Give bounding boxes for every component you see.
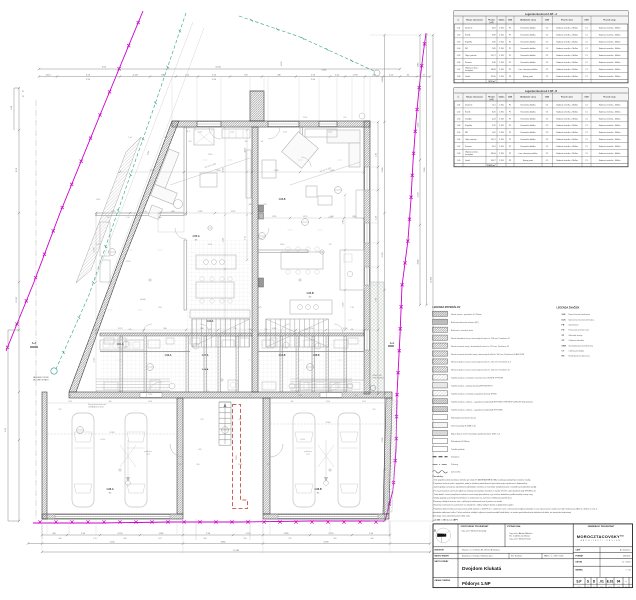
svg-text:1.465: 1.465 <box>418 63 420 68</box>
svg-text:PARC. Č.: XXX / XXX: PARC. Č.: XXX / XXX <box>544 555 564 558</box>
svg-text:Obkladané steny: Obkladané steny <box>520 96 537 99</box>
svg-text:Sadrová omietka + Maľba: Sadrová omietka + Maľba <box>556 159 579 162</box>
svg-text:Sadrová omietka + Maľba: Sadrová omietka + Maľba <box>556 138 579 141</box>
svg-text:Keramická dlažba: Keramická dlažba <box>520 110 536 113</box>
svg-text:Keramická dlažba: Keramická dlažba <box>520 47 536 50</box>
svg-text:1.125: 1.125 <box>328 391 332 393</box>
svg-text:1.04: 1.04 <box>457 125 461 127</box>
svg-text:250: 250 <box>355 395 358 397</box>
svg-text:LIGHADA R.20 2013: LIGHADA R.20 2013 <box>88 406 104 409</box>
svg-text:2,700: 2,700 <box>499 41 504 43</box>
svg-text:1.93: 1.93 <box>376 153 378 157</box>
svg-text:2.28: 2.28 <box>376 216 378 220</box>
svg-text:Lam. drevená podlaha: Lam. drevená podlaha <box>519 152 539 155</box>
svg-text:O1: O1 <box>546 139 549 141</box>
svg-text:Komora: Komora <box>465 145 473 148</box>
svg-text:O2: O2 <box>546 41 549 43</box>
svg-text:710: 710 <box>107 217 110 219</box>
svg-text:1.06: 1.06 <box>457 62 461 64</box>
svg-text:4,24: 4,24 <box>492 118 496 120</box>
svg-text:C1: C1 <box>585 27 587 29</box>
svg-text:Bc. Ľudmila Jurčíková: Bc. Ľudmila Jurčíková <box>510 535 531 538</box>
svg-text:Názov miestnosti: Názov miestnosti <box>466 96 483 99</box>
svg-text:1.08: 1.08 <box>457 153 461 155</box>
svg-text:C1: C1 <box>585 104 587 106</box>
svg-text:1.100: 1.100 <box>418 193 420 198</box>
svg-text:Sadrová omietka + Maľba: Sadrová omietka + Maľba <box>599 75 622 78</box>
svg-text:DLK: DLK <box>562 319 567 321</box>
svg-text:1 : 50: 1 : 50 <box>625 570 631 572</box>
svg-text:710: 710 <box>329 244 332 246</box>
svg-text:1,62: 1,62 <box>492 132 496 134</box>
svg-text:KÚ: Ružinov: KÚ: Ružinov <box>511 555 522 558</box>
svg-text:3.860: 3.860 <box>220 541 226 543</box>
svg-text:1.01: 1.01 <box>457 27 461 29</box>
svg-text:Inštalačne: Inštalačne <box>451 456 459 459</box>
svg-text:2.100: 2.100 <box>126 261 131 263</box>
svg-text:250: 250 <box>179 464 182 466</box>
svg-text:Sadrová omietka + Maľba: Sadrová omietka + Maľba <box>599 26 622 29</box>
svg-text:250: 250 <box>264 204 267 206</box>
svg-text:Sadrová omietka + Maľba: Sadrová omietka + Maľba <box>556 103 579 106</box>
svg-text:MOROCZTACOVSKY™: MOROCZTACOVSKY™ <box>577 534 624 539</box>
svg-text:-0.020: -0.020 <box>300 439 305 441</box>
svg-text:1.04: 1.04 <box>11 106 13 110</box>
svg-text:1.790: 1.790 <box>245 533 251 535</box>
svg-text:2.04: 2.04 <box>283 132 287 134</box>
svg-text:- Projektové riešenie jadro i: - Projektové riešenie jadro i projektoré… <box>433 482 529 485</box>
svg-text:76.7°: 76.7° <box>186 131 191 133</box>
svg-text:1.985: 1.985 <box>283 533 289 535</box>
svg-text:2,700: 2,700 <box>499 55 504 57</box>
svg-text:1.141: 1.141 <box>208 244 213 246</box>
svg-text:Železobetón B-190mm: Železobetón B-190mm <box>451 440 470 443</box>
svg-text:Tehelňá pokladu: Tehelňá pokladu <box>451 449 464 451</box>
svg-text:2.720: 2.720 <box>328 533 334 535</box>
svg-text:TUHE ODPADY: TUHE ODPADY <box>372 377 385 380</box>
svg-text:260: 260 <box>265 329 268 331</box>
svg-text:2.100: 2.100 <box>96 244 100 246</box>
svg-text:Pôdorys 1.NP: Pôdorys 1.NP <box>462 581 491 586</box>
svg-text:Keramická dlažba: Keramická dlažba <box>520 61 536 64</box>
svg-text:ZODPOVEDNÝ PROJEKTANT: ZODPOVEDNÝ PROJEKTANT <box>461 525 490 528</box>
svg-text:Sadrová omietka + Maľba: Sadrová omietka + Maľba <box>599 61 622 64</box>
svg-text:240: 240 <box>59 538 62 540</box>
svg-text:Tepelná izolácia a izolácia -: Tepelná izolácia a izolácia - sagordovan… <box>451 400 533 403</box>
svg-text:2.180: 2.180 <box>216 170 221 172</box>
svg-text:Sadrová omietka + Maľba: Sadrová omietka + Maľba <box>556 40 579 43</box>
svg-text:OZN: OZN <box>545 20 550 22</box>
svg-text:125: 125 <box>207 391 210 393</box>
svg-text:2,700: 2,700 <box>499 118 504 120</box>
svg-text:Sadrová omietka + Maľba: Sadrová omietka + Maľba <box>599 152 622 155</box>
svg-text:150: 150 <box>245 141 248 143</box>
svg-text:125: 125 <box>373 409 376 411</box>
svg-text:OZN: OZN <box>545 97 550 99</box>
svg-text:1.03-A: 1.03-A <box>165 354 172 357</box>
svg-text:- Rozmery všetkých otvorov, st: - Rozmery všetkých otvorov, stien i výšk… <box>433 500 503 503</box>
svg-text:Tepelná izolácia a izolácia -: Tepelná izolácia a izolácia - sagordovan… <box>451 408 503 411</box>
svg-text:Sadrová omietka + Maľba: Sadrová omietka + Maľba <box>599 40 622 43</box>
svg-text:Sadrová omietka + Maľba: Sadrová omietka + Maľba <box>556 117 579 120</box>
svg-text:Garáž: Garáž <box>465 75 470 78</box>
svg-text:Samodotváraná membránový: Samodotváraná membránový <box>569 344 593 347</box>
svg-text:Sadrová omietka + Maľba: Sadrová omietka + Maľba <box>599 110 622 113</box>
svg-text:1.03: 1.03 <box>457 41 461 43</box>
svg-text:O1: O1 <box>546 118 549 120</box>
svg-text:Zemná tŕňa: Zemná tŕňa <box>451 471 461 474</box>
svg-text:P1: P1 <box>509 111 511 113</box>
svg-text:2.04: 2.04 <box>328 132 332 134</box>
svg-text:Sadrová omietka + Maľba: Sadrová omietka + Maľba <box>599 54 622 57</box>
svg-text:Nízkoteplotná betonové dosek: Nízkoteplotná betonové dosek <box>451 416 476 419</box>
svg-text:Povrch strop: Povrch strop <box>603 96 616 99</box>
svg-text:675: 675 <box>352 216 355 218</box>
svg-text:O1: O1 <box>546 153 549 155</box>
svg-text:kuchyňou: kuchyňou <box>465 154 473 156</box>
svg-text:P1: P1 <box>509 34 511 36</box>
svg-text:300: 300 <box>109 401 112 403</box>
svg-text:P1: P1 <box>509 55 511 57</box>
svg-text:Povrazová prvotná stena: Povrazová prvotná stena <box>569 329 590 332</box>
svg-text:7.690: 7.690 <box>424 168 426 173</box>
svg-text:NÁZOV STAVBY: NÁZOV STAVBY <box>435 560 450 563</box>
svg-text:Šatník: Šatník <box>465 110 470 113</box>
svg-text:C1: C1 <box>585 153 587 155</box>
svg-text:Nosná obvodová steny z keramic: Nosná obvodová steny z keramických tvárn… <box>451 337 510 340</box>
svg-text:C1: C1 <box>585 55 587 57</box>
svg-text:OZN: OZN <box>584 97 589 99</box>
svg-text:1.08: 1.08 <box>457 76 461 78</box>
svg-text:2.325: 2.325 <box>94 358 96 363</box>
svg-text:2.420: 2.420 <box>418 123 420 128</box>
svg-text:Sadrová omietka + Maľba: Sadrová omietka + Maľba <box>599 131 622 134</box>
svg-text:1.790: 1.790 <box>352 74 358 76</box>
svg-text:6.280: 6.280 <box>323 541 329 543</box>
svg-text:1.210: 1.210 <box>272 216 277 218</box>
svg-text:Šatník: Šatník <box>465 33 470 36</box>
svg-text:1.02: 1.02 <box>457 34 461 36</box>
svg-text:2,700: 2,700 <box>499 69 504 71</box>
svg-text:Obývacia izba s: Obývacia izba s <box>465 67 478 69</box>
svg-text:905: 905 <box>239 419 242 421</box>
svg-text:29,71: 29,71 <box>491 139 496 141</box>
svg-text:Názov miestnosti: Názov miestnosti <box>466 19 483 22</box>
svg-text:O1: O1 <box>546 27 549 29</box>
svg-text:710: 710 <box>249 395 252 397</box>
svg-text:- Treba dodať a overiť projekt: - Treba dodať a overiť projektovú realiz… <box>433 493 534 496</box>
svg-text:1.985: 1.985 <box>343 220 345 225</box>
svg-text:Odtoková obvodné: Odtoková obvodné <box>569 339 584 342</box>
svg-text:Keramická dlažba: Keramická dlažba <box>520 26 536 29</box>
svg-text:1.08-B: 1.08-B <box>314 488 321 491</box>
svg-text:2.930: 2.930 <box>208 154 212 156</box>
svg-text:Keramická dlažba: Keramická dlažba <box>520 145 536 148</box>
svg-text:Nosná vnútorná steny z keramic: Nosná vnútorná steny z keramických tvárn… <box>451 345 509 348</box>
svg-text:Spevnený nenosná konštrukcia: Spevnený nenosná konštrukcia <box>569 318 596 321</box>
svg-text:C1: C1 <box>585 125 587 127</box>
svg-text:Výška: Výška <box>499 19 506 22</box>
svg-text:C1: C1 <box>585 41 587 43</box>
svg-text:1.375: 1.375 <box>231 211 236 213</box>
svg-text:O1: O1 <box>546 62 549 64</box>
svg-text:5.160: 5.160 <box>326 422 331 424</box>
svg-text:Nenosná deliace steny z kerami: Nenosná deliace steny z keramických tvár… <box>451 361 511 364</box>
svg-text:Lam. drevená podlaha: Lam. drevená podlaha <box>519 68 539 71</box>
svg-text:LEGENDA ZNAČIEK: LEGENDA ZNAČIEK <box>557 306 580 309</box>
svg-text:880: 880 <box>165 137 168 139</box>
svg-text:9.081: 9.081 <box>321 70 327 72</box>
svg-text:O2: O2 <box>546 132 549 134</box>
svg-text:Obýv. priestor: Obýv. priestor <box>465 138 477 141</box>
svg-text:Zhutnený poklop B (SSB m-b): Zhutnený poklop B (SSB m-b) <box>451 424 476 427</box>
svg-text:2,700: 2,700 <box>499 76 504 78</box>
svg-text:1.04: 1.04 <box>457 48 461 50</box>
svg-text:300: 300 <box>249 204 252 206</box>
svg-text:900: 900 <box>163 328 166 330</box>
svg-text:(P): (P) <box>195 240 198 242</box>
svg-text:1.563: 1.563 <box>236 456 238 461</box>
svg-text:2,700: 2,700 <box>499 27 504 29</box>
svg-text:Tepelná izolácia na bezšpár. p: Tepelná izolácia na bezšpár. polystyrén … <box>451 393 497 396</box>
svg-text:OZN: OZN <box>584 20 589 22</box>
svg-text:P1: P1 <box>509 48 511 50</box>
svg-text:C1: C1 <box>585 160 587 162</box>
svg-text:P1: P1 <box>509 27 511 29</box>
svg-text:Keramická dlažba: Keramická dlažba <box>520 131 536 134</box>
svg-text:(P): (P) <box>109 493 112 495</box>
svg-text:675: 675 <box>344 117 347 119</box>
svg-text:1.05: 1.05 <box>457 55 461 57</box>
svg-text:Epoxy poter: Epoxy poter <box>523 159 533 162</box>
svg-text:32,90: 32,90 <box>491 76 496 78</box>
svg-text:905: 905 <box>124 538 127 540</box>
svg-text:125: 125 <box>59 409 62 411</box>
svg-text:kuchyňou: kuchyňou <box>465 70 473 72</box>
svg-text:710: 710 <box>189 141 192 143</box>
svg-text:Sadrová omietka + Maľba: Sadrová omietka + Maľba <box>556 152 579 155</box>
svg-text:2,700: 2,700 <box>499 62 504 64</box>
svg-text:2.100: 2.100 <box>148 401 152 403</box>
svg-text:vpust: vpust <box>146 453 151 456</box>
svg-text:1.141: 1.141 <box>223 238 225 243</box>
svg-text:1.425: 1.425 <box>111 211 116 213</box>
svg-text:900: 900 <box>330 216 333 218</box>
svg-text:C1: C1 <box>585 146 587 148</box>
svg-text:594x841: 594x841 <box>623 556 632 558</box>
svg-text:1.01: 1.01 <box>457 104 461 106</box>
svg-text:P3: P3 <box>509 76 511 78</box>
svg-text:2.04: 2.04 <box>198 132 202 134</box>
svg-text:(P): (P) <box>309 297 312 299</box>
svg-text:Sadrová omietka + Maľba: Sadrová omietka + Maľba <box>599 124 622 127</box>
svg-text:Keramická dlažba: Keramická dlažba <box>520 33 536 36</box>
svg-text:C1: C1 <box>585 132 587 134</box>
svg-text:P1: P1 <box>509 146 511 148</box>
svg-text:2,700: 2,700 <box>499 104 504 106</box>
svg-text:1.150: 1.150 <box>309 328 314 330</box>
svg-text:880: 880 <box>171 211 174 213</box>
svg-text:Sadrová omietka + Maľba: Sadrová omietka + Maľba <box>599 33 622 36</box>
svg-text:-0.020: -0.020 <box>100 439 105 441</box>
svg-text:C1: C1 <box>585 111 587 113</box>
svg-text:Sadrová omietka + Maľba: Sadrová omietka + Maľba <box>556 33 579 36</box>
svg-text:Ing. arch. Michal Tatranský: Ing. arch. Michal Tatranský <box>462 530 488 533</box>
svg-text:1.50: 1.50 <box>126 217 130 219</box>
svg-text:vpust: vpust <box>306 453 311 456</box>
svg-text:OBJ: OBJ <box>587 586 590 588</box>
svg-text:2.930: 2.930 <box>150 170 155 172</box>
svg-text:375: 375 <box>209 329 212 331</box>
svg-text:Ing. arch. Michal Pavlo: Ing. arch. Michal Pavlo <box>510 537 532 540</box>
svg-text:1.563: 1.563 <box>238 464 243 466</box>
svg-text:Povrch stien: Povrch stien <box>561 19 574 22</box>
svg-text:O1: O1 <box>546 34 549 36</box>
svg-text:Keramická dlažba: Keramická dlažba <box>520 54 536 57</box>
svg-text:1.07: 1.07 <box>457 146 461 148</box>
svg-text:Sadrová omietka + Maľba: Sadrová omietka + Maľba <box>599 117 622 120</box>
svg-text:O1: O1 <box>546 160 549 162</box>
svg-text:A-A: A-A <box>390 341 395 345</box>
svg-text:25: 25 <box>22 96 24 98</box>
svg-text:950: 950 <box>197 464 200 466</box>
svg-text:- Všetky projekty a profesijné: - Všetky projekty a profesijné konštrukc… <box>433 497 513 500</box>
svg-text:710: 710 <box>233 328 236 330</box>
svg-text:P1: P1 <box>509 118 511 120</box>
svg-text:O1: O1 <box>546 104 549 106</box>
svg-text:Sadrová omietka + Maľba: Sadrová omietka + Maľba <box>599 145 622 148</box>
svg-text:1,85: 1,85 <box>492 48 496 50</box>
svg-text:RE: RE <box>625 586 627 588</box>
svg-text:375: 375 <box>267 464 270 466</box>
svg-text:3,98: 3,98 <box>492 34 496 36</box>
svg-text:2,700: 2,700 <box>499 153 504 155</box>
svg-text:2,700: 2,700 <box>499 139 504 141</box>
svg-text:38,04: 38,04 <box>491 153 496 155</box>
svg-text:O1: O1 <box>546 111 549 113</box>
svg-text:3,14: 3,14 <box>492 146 496 148</box>
svg-text:1.125: 1.125 <box>68 401 72 403</box>
svg-text:Nosné murivo - porobetón hr. 2: Nosné murivo - porobetón hr. 250mm <box>451 313 482 316</box>
svg-text:Sadrová omietka + Maľba: Sadrová omietka + Maľba <box>556 47 579 50</box>
svg-text:A-A: A-A <box>32 341 37 345</box>
svg-text:4,63: 4,63 <box>492 27 496 29</box>
svg-text:38,08: 38,08 <box>491 69 496 71</box>
svg-text:Keramická dlažba: Keramická dlažba <box>520 138 536 141</box>
svg-text:P1: P1 <box>509 104 511 106</box>
svg-text:3,46: 3,46 <box>492 62 496 64</box>
svg-text:300: 300 <box>291 401 294 403</box>
svg-text:Kúpeľňa: Kúpeľňa <box>465 41 473 43</box>
svg-text:880: 880 <box>159 217 162 219</box>
svg-text:13.860: 13.860 <box>431 277 433 283</box>
svg-text:29,71: 29,71 <box>491 55 496 57</box>
svg-text:SLK: SLK <box>562 314 567 316</box>
svg-text:905: 905 <box>334 538 337 540</box>
svg-text:1.480: 1.480 <box>298 395 303 397</box>
svg-text:- Pre navrhované je navrhnuté: - Pre navrhované je navrhnuté odbornou r… <box>433 489 537 492</box>
svg-text:FORMÁT: FORMÁT <box>576 555 585 558</box>
svg-text:1.465: 1.465 <box>96 199 100 201</box>
svg-text:POR: POR <box>617 586 620 588</box>
svg-text:2,700: 2,700 <box>499 146 504 148</box>
svg-text:2.185: 2.185 <box>382 438 384 443</box>
svg-text:P3: P3 <box>509 160 511 162</box>
svg-text:Sadrová omietka + Maľba: Sadrová omietka + Maľba <box>556 68 579 71</box>
svg-text:2,700: 2,700 <box>499 160 504 162</box>
svg-text:7.200: 7.200 <box>109 541 115 543</box>
svg-text:4.240: 4.240 <box>418 260 420 265</box>
svg-text:Obýv. priestor: Obýv. priestor <box>465 54 477 57</box>
svg-text:1.04-B: 1.04-B <box>279 198 286 201</box>
svg-text:Požiarny: Požiarny <box>451 463 458 466</box>
svg-text:Sadrová omietka + Maľba: Sadrová omietka + Maľba <box>556 75 579 78</box>
svg-text:950: 950 <box>159 307 162 309</box>
svg-text:1.02: 1.02 <box>457 111 461 113</box>
svg-text:C1: C1 <box>585 76 587 78</box>
svg-text:P1: P1 <box>509 41 511 43</box>
svg-text:Poznámky:: Poznámky: <box>433 476 444 478</box>
svg-text:Legenda miestnosti 1.NP - B: Legenda miestnosti 1.NP - B <box>525 90 558 93</box>
svg-text:S: S <box>434 529 436 533</box>
svg-text:Rozdeľovač príslušenstva: Rozdeľovač príslušenstva <box>569 355 591 358</box>
svg-text:Chodba: Chodba <box>465 118 473 120</box>
svg-text:4.720: 4.720 <box>117 533 123 535</box>
svg-text:S.P: S.P <box>576 580 582 584</box>
svg-text:OBSAH VÝKRESU: OBSAH VÝKRESU <box>435 579 451 582</box>
svg-text:GENERÁLNY PROJEKTANT: GENERÁLNY PROJEKTANT <box>588 525 615 528</box>
svg-text:(P): (P) <box>317 493 320 495</box>
svg-text:E.01: E.01 <box>607 580 614 584</box>
svg-text:VYPRACOVAL: VYPRACOVAL <box>507 525 522 528</box>
svg-text:Zádverie: Zádverie <box>465 26 472 29</box>
svg-text:DÁTUM: DÁTUM <box>576 561 583 564</box>
svg-text:1.125: 1.125 <box>303 216 308 218</box>
svg-text:880: 880 <box>200 328 203 330</box>
svg-text:Sadrová omietka + Maľba: Sadrová omietka + Maľba <box>599 103 622 106</box>
svg-text:150: 150 <box>239 335 242 337</box>
svg-text:±0.00: ±0.00 <box>281 62 283 66</box>
svg-text:2,700: 2,700 <box>499 132 504 134</box>
svg-text:11 / 2020: 11 / 2020 <box>622 562 631 564</box>
svg-text:560: 560 <box>204 538 207 540</box>
svg-text:Ing. arch. Adrián Mihalco: Ing. arch. Adrián Mihalco <box>510 532 534 535</box>
svg-text:Sadrová omietka + Maľba: Sadrová omietka + Maľba <box>556 131 579 134</box>
svg-text:Nenosná deliace steny z kerami: Nenosná deliace steny z keramických tvár… <box>451 369 510 372</box>
svg-text:2.100: 2.100 <box>382 253 384 258</box>
svg-text:P1: P1 <box>509 139 511 141</box>
svg-text:P2: P2 <box>509 153 511 155</box>
svg-text:Nosná kovová konštrukcia: Nosná kovová konštrukcia <box>569 313 591 316</box>
svg-text:O2: O2 <box>546 48 549 50</box>
svg-text:Komora: Komora <box>465 61 473 64</box>
svg-text:375: 375 <box>201 419 204 421</box>
svg-text:MIERKA: MIERKA <box>576 569 584 572</box>
svg-text:spôsobilou odbornosť celku. Po: spôsobilou odbornosť celku. Počas realiz… <box>433 511 571 514</box>
svg-text:4.185: 4.185 <box>223 168 225 173</box>
svg-text:1.30: 1.30 <box>350 307 354 309</box>
svg-text:2.75: 2.75 <box>245 236 247 240</box>
svg-text:Stavex s.r.o. Krétska 83, 831: Stavex s.r.o. Krétska 83, 831 10 Bratisl… <box>462 548 501 551</box>
svg-text:P1: P1 <box>509 62 511 64</box>
svg-text:Keramická dlažba: Keramická dlažba <box>520 40 536 43</box>
svg-text:Kúpeľňa: Kúpeľňa <box>465 125 473 127</box>
svg-text:C1: C1 <box>585 34 587 36</box>
svg-text:Obývacia izba s: Obývacia izba s <box>465 151 478 153</box>
svg-text:P2: P2 <box>509 69 511 71</box>
svg-text:Keramická dlažba: Keramická dlažba <box>520 103 536 106</box>
svg-text:- Táto projektová dokumentácia: - Táto projektová dokumentácia slúži iba… <box>433 478 532 481</box>
